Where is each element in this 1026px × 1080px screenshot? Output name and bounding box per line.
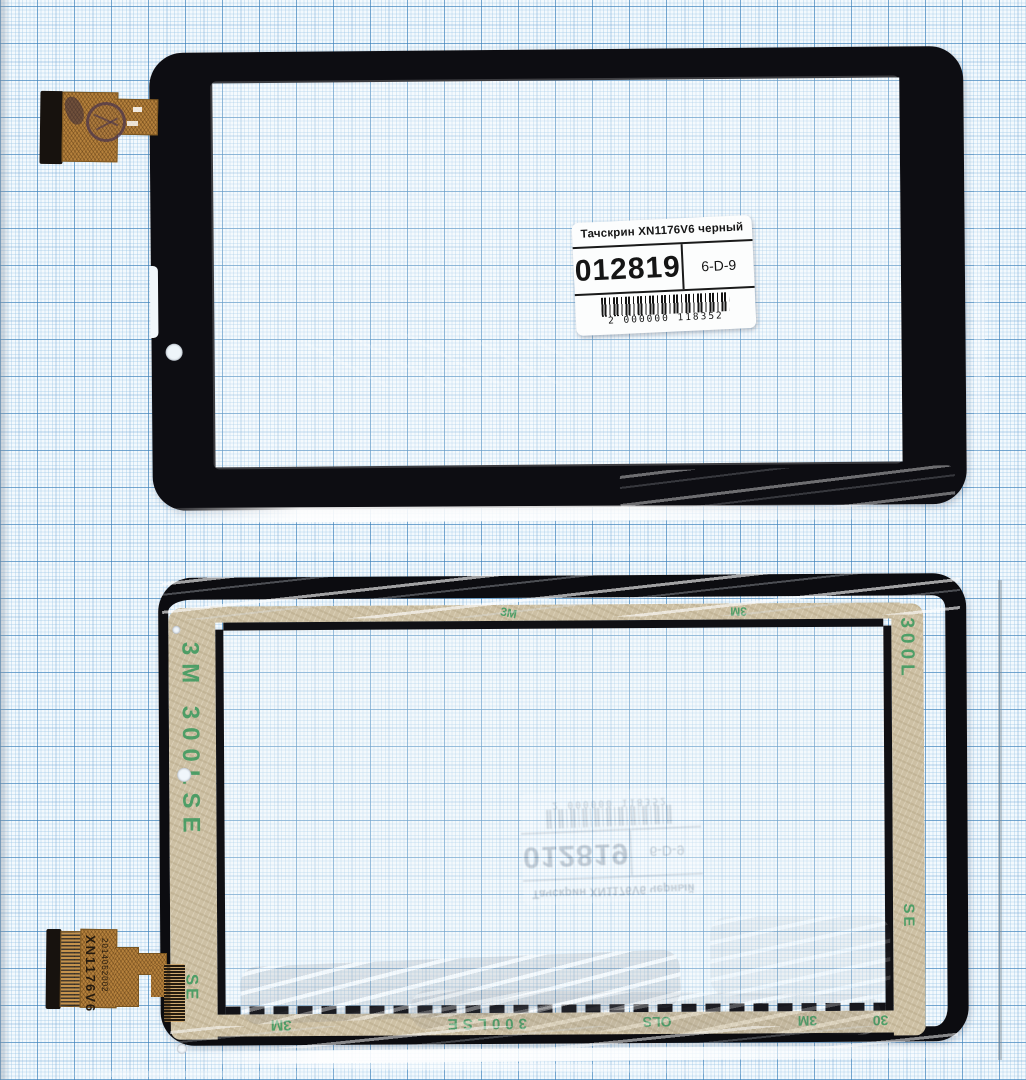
touchscreen-front-frame (149, 46, 967, 511)
camera-hole (166, 344, 183, 361)
plastic-wrap-highlight (974, 90, 985, 510)
tape-print-text: 300L (897, 617, 916, 680)
plastic-wrap-crumple (710, 916, 890, 997)
plastic-wrap-edge (998, 580, 1002, 1060)
tape-registration-hole (177, 1044, 187, 1054)
cable-model-text: XN1176V6 (84, 935, 97, 1013)
qc-round-stamp-icon (86, 102, 126, 142)
label-sku-number: 012819 (573, 244, 683, 294)
ghost-label-sku-number: 012819 (521, 831, 631, 880)
cable-solder-window (127, 121, 138, 126)
tape-print-text: SE (901, 903, 916, 929)
label-seen-through-glass: Тачскрин XN1176V6 черный 012819 6-D-9 2 … (519, 787, 703, 906)
tape-print-text: 300LSE (443, 1016, 527, 1032)
label-barcode: 2 000000 118352 (575, 288, 756, 328)
product-photo-scene: Тачскрин XN1176V6 черный 012819 6-D-9 2 … (0, 0, 1026, 1080)
adhesive-tape-bottom: 3M 300LSE OLS 3M 30 (213, 1010, 903, 1036)
label-bin-code: 6-D-9 (681, 241, 755, 289)
tape-registration-hole (172, 626, 180, 634)
sensor-border-trace (215, 630, 225, 1015)
tape-print-text: OLS (643, 1015, 672, 1029)
tape-print-text: 3M (499, 605, 518, 620)
glass-scratch-reflections (304, 330, 574, 387)
flex-cable-trace-bundle (164, 964, 185, 1022)
tape-print-text: 3M 300LSE (177, 642, 202, 841)
glass-reflection-haze (210, 75, 902, 469)
paper-edge-shadow (0, 0, 10, 1080)
frame-edge-notch (150, 266, 159, 338)
cable-solder-window (133, 107, 142, 112)
tape-print-text: 3M (271, 1017, 292, 1032)
ghost-label-middle-row: 012819 6-D-9 (521, 826, 703, 880)
plastic-wrap-highlight (173, 1044, 993, 1064)
tape-print-text: 3M (798, 1014, 818, 1028)
touchscreen-back-frame: 3M 300LSE SE 300L SE 3M 3M 3M 300LSE OLS… (158, 573, 969, 1046)
tape-print-text: SE (183, 974, 200, 1003)
tape-print-text: 30 (873, 1014, 889, 1028)
camera-hole-back (177, 768, 191, 782)
label-middle-row: 012819 6-D-9 (573, 241, 755, 296)
plastic-wrap-highlight (150, 543, 800, 556)
product-label: Тачскрин XN1176V6 черный 012819 6-D-9 2 … (572, 215, 757, 336)
adhesive-tape-right: 300L SE (891, 603, 926, 1035)
plastic-wrap-highlight (230, 1059, 790, 1075)
flex-cable-connector-stiffener (39, 91, 63, 164)
ghost-label-bin-code: 6-D-9 (629, 828, 703, 876)
flex-cable-step (115, 947, 139, 1007)
flex-cable-pin-comb (60, 931, 82, 1007)
tape-print-text: 3M (730, 605, 747, 617)
plastic-wrap-highlight (55, 1071, 365, 1077)
cable-date-code-text: 2014052002 (100, 938, 108, 993)
